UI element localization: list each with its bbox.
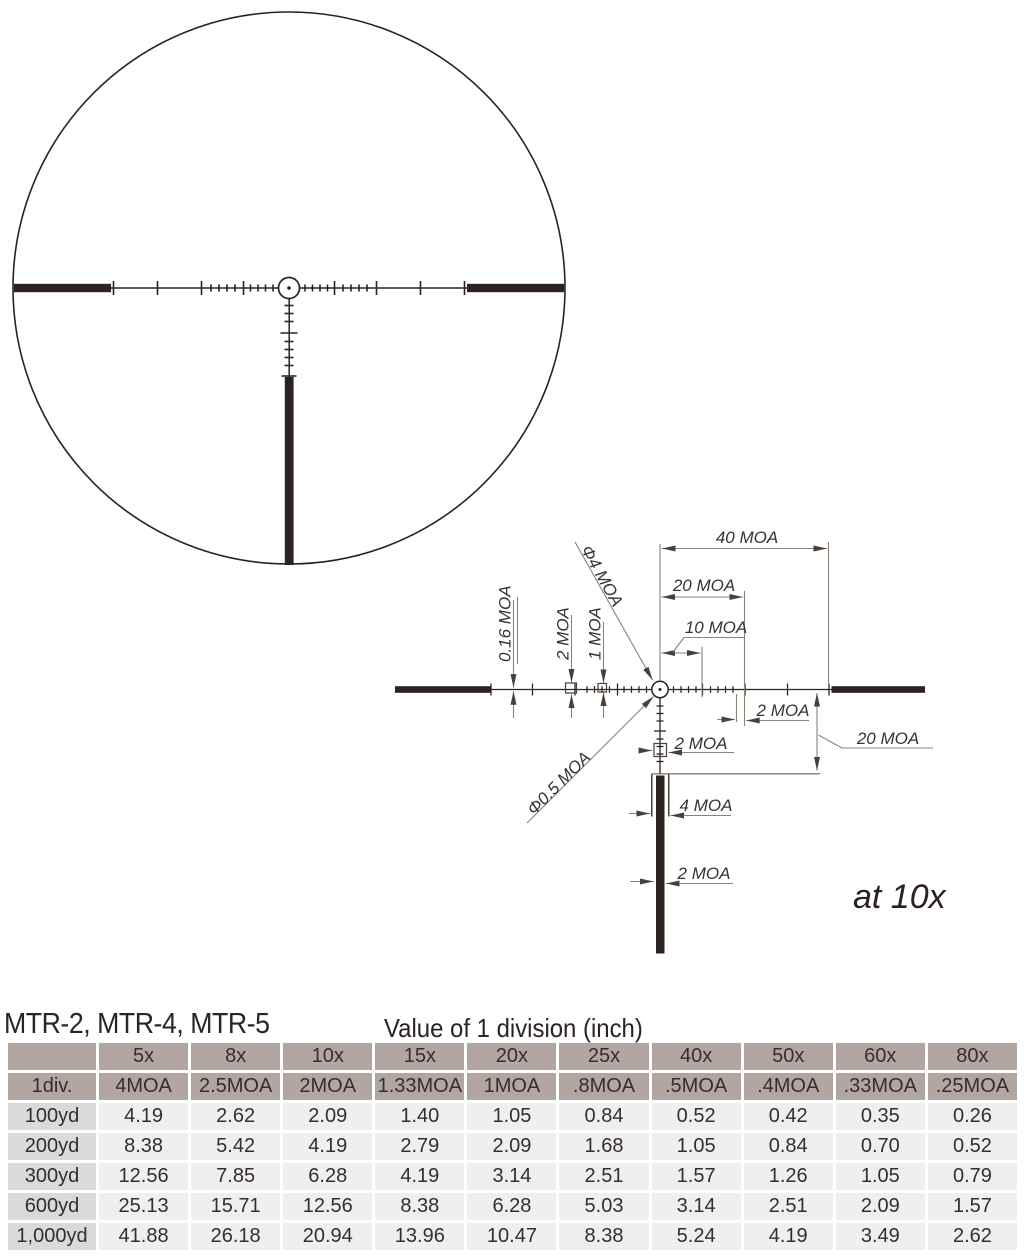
range-label: 300yd: [8, 1163, 96, 1190]
magnification-header: 8x: [191, 1043, 280, 1070]
value-cell: 0.79: [928, 1163, 1017, 1190]
dim-label-40moa: 40 MOA: [716, 528, 778, 547]
dim-label-2moa-below: 2 MOA: [674, 734, 728, 753]
diagram-bottom-post: [656, 776, 665, 954]
value-cell: 0.42: [744, 1103, 833, 1130]
page: 40 MOA 20 MOA 10 MOA Φ4 MOA Φ0.5 MOA 0.1…: [0, 0, 1024, 1258]
dim-label-1moa-left: 1 MOA: [586, 607, 605, 660]
value-cell: 7.85: [191, 1163, 280, 1190]
magnification-header: 60x: [836, 1043, 925, 1070]
moa-value-cell: 4MOA: [99, 1073, 188, 1100]
big-reticle-view: [13, 12, 565, 565]
value-cell: 1.05: [836, 1163, 925, 1190]
value-cell: 15.71: [191, 1193, 280, 1220]
value-cell: 8.38: [559, 1223, 648, 1250]
value-cell: 0.84: [559, 1103, 648, 1130]
value-cell: 2.79: [375, 1133, 464, 1160]
moa-value-cell: 2.5MOA: [191, 1073, 280, 1100]
value-cell: 5.42: [191, 1133, 280, 1160]
magnification-header: 50x: [744, 1043, 833, 1070]
value-cell: 1.57: [652, 1163, 741, 1190]
moa-value-cell: .25MOA: [928, 1073, 1017, 1100]
value-cell: 8.38: [99, 1133, 188, 1160]
value-cell: 5.24: [652, 1223, 741, 1250]
left-post-bar: [14, 284, 111, 292]
magnification-header: 5x: [99, 1043, 188, 1070]
dim-label-2moa-right: 2 MOA: [756, 701, 810, 720]
center-dot: [287, 286, 291, 290]
value-cell: 4.19: [283, 1133, 372, 1160]
dim-label-016moa: 0.16 MOA: [496, 585, 515, 662]
value-cell: 1.40: [375, 1103, 464, 1130]
magnification-header: 40x: [652, 1043, 741, 1070]
table-row: 1div.4MOA2.5MOA2MOA1.33MOA1MOA.8MOA.5MOA…: [8, 1073, 1017, 1100]
table-row: 1,000yd41.8826.1820.9413.9610.478.385.24…: [8, 1223, 1017, 1250]
range-label: 600yd: [8, 1193, 96, 1220]
diagram-right-bar: [832, 686, 926, 693]
value-cell: 2.51: [559, 1163, 648, 1190]
value-cell: 3.14: [652, 1193, 741, 1220]
page-title: MTR-2, MTR-4, MTR-5: [4, 1008, 269, 1041]
right-post-bar: [467, 284, 564, 292]
range-label: 200yd: [8, 1133, 96, 1160]
value-cell: 12.56: [283, 1193, 372, 1220]
table-row: 300yd12.567.856.284.193.142.511.571.261.…: [8, 1163, 1017, 1190]
value-cell: 1.05: [467, 1103, 556, 1130]
moa-value-cell: .4MOA: [744, 1073, 833, 1100]
diagram-center-dot: [659, 688, 662, 691]
value-cell: 4.19: [375, 1163, 464, 1190]
value-cell: 0.52: [652, 1103, 741, 1130]
division-value-table: 5x8x10x15x20x25x40x50x60x80x1div.4MOA2.5…: [5, 1040, 1020, 1253]
bottom-post-bar: [285, 377, 294, 565]
value-cell: 5.03: [559, 1193, 648, 1220]
dim-label-4moa-post: 4 MOA: [680, 796, 733, 815]
table-row: 200yd8.385.424.192.792.091.681.050.840.7…: [8, 1133, 1017, 1160]
value-cell: 20.94: [283, 1223, 372, 1250]
dim-label-10moa: 10 MOA: [685, 618, 747, 637]
table-row: 100yd4.192.622.091.401.050.840.520.420.3…: [8, 1103, 1017, 1130]
value-cell: 3.49: [836, 1223, 925, 1250]
value-cell: 0.84: [744, 1133, 833, 1160]
value-cell: 26.18: [191, 1223, 280, 1250]
table-row: 5x8x10x15x20x25x40x50x60x80x: [8, 1043, 1017, 1070]
dim-label-2moa-left: 2 MOA: [554, 607, 573, 661]
value-cell: 2.09: [467, 1133, 556, 1160]
corner-cell: [8, 1043, 96, 1070]
value-cell: 4.19: [99, 1103, 188, 1130]
value-cell: 0.70: [836, 1133, 925, 1160]
value-cell: 25.13: [99, 1193, 188, 1220]
dim-label-dia-4moa: Φ4 MOA: [577, 542, 627, 610]
table-row: 600yd25.1315.7112.568.386.285.033.142.51…: [8, 1193, 1017, 1220]
value-cell: 4.19: [744, 1223, 833, 1250]
diagram-left-bar: [395, 686, 491, 693]
magnified-reticle: [395, 681, 925, 953]
value-cell: 6.28: [283, 1163, 372, 1190]
value-cell: 1.57: [928, 1193, 1017, 1220]
moa-value-cell: .5MOA: [652, 1073, 741, 1100]
dim-label-2moa-post: 2 MOA: [677, 864, 731, 883]
value-cell: 2.09: [836, 1193, 925, 1220]
moa-value-cell: .33MOA: [836, 1073, 925, 1100]
value-cell: 1.26: [744, 1163, 833, 1190]
moa-value-cell: 2MOA: [283, 1073, 372, 1100]
value-cell: 10.47: [467, 1223, 556, 1250]
magnification-header: 15x: [375, 1043, 464, 1070]
div-row-label: 1div.: [8, 1073, 96, 1100]
magnification-note: at 10x: [853, 878, 947, 916]
moa-value-cell: .8MOA: [559, 1073, 648, 1100]
value-cell: 8.38: [375, 1193, 464, 1220]
value-cell: 13.96: [375, 1223, 464, 1250]
value-cell: 2.62: [191, 1103, 280, 1130]
value-cell: 2.51: [744, 1193, 833, 1220]
magnification-header: 10x: [283, 1043, 372, 1070]
moa-value-cell: 1.33MOA: [375, 1073, 464, 1100]
value-cell: 1.68: [559, 1133, 648, 1160]
value-cell: 3.14: [467, 1163, 556, 1190]
dim-label-20moa-right: 20 MOA: [856, 729, 919, 748]
value-cell: 0.26: [928, 1103, 1017, 1130]
leader-line: [673, 638, 684, 653]
value-cell: 0.35: [836, 1103, 925, 1130]
magnification-header: 20x: [467, 1043, 556, 1070]
moa-value-cell: 1MOA: [467, 1073, 556, 1100]
value-cell: 2.62: [928, 1223, 1017, 1250]
dimension-labels: 40 MOA 20 MOA 10 MOA Φ4 MOA Φ0.5 MOA 0.1…: [496, 528, 947, 916]
value-cell: 2.09: [283, 1103, 372, 1130]
value-cell: 12.56: [99, 1163, 188, 1190]
dim-label-dia-05moa: Φ0.5 MOA: [523, 748, 594, 819]
value-cell: 1.05: [652, 1133, 741, 1160]
range-label: 1,000yd: [8, 1223, 96, 1250]
dim-label-20moa-top: 20 MOA: [672, 576, 735, 595]
value-cell: 41.88: [99, 1223, 188, 1250]
value-cell: 0.52: [928, 1133, 1017, 1160]
magnification-header: 25x: [559, 1043, 648, 1070]
value-cell: 6.28: [467, 1193, 556, 1220]
magnification-header: 80x: [928, 1043, 1017, 1070]
range-label: 100yd: [8, 1103, 96, 1130]
